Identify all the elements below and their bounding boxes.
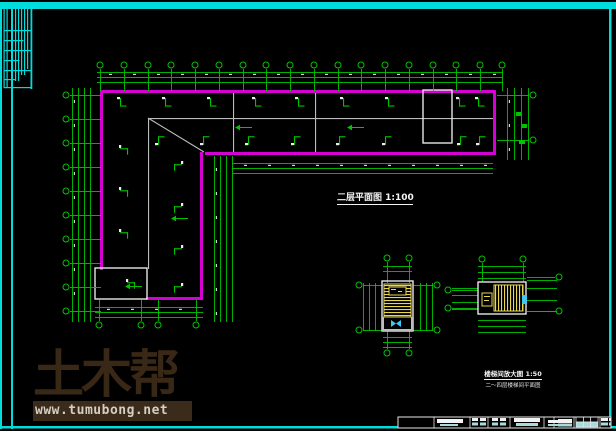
dimension-line [95, 317, 203, 318]
dimension-line [369, 283, 370, 331]
dimension-text-mark [292, 165, 295, 166]
grid-axis-bubble [520, 256, 526, 262]
dimension-text-mark [445, 74, 448, 75]
door-symbol [174, 286, 182, 287]
grid-axis-bubble [477, 62, 483, 68]
door-symbol [388, 106, 395, 107]
dimension-line [452, 302, 478, 303]
dimension-text-mark [509, 148, 510, 151]
dimension-line [72, 88, 73, 322]
dimension-line [478, 320, 526, 321]
dimension-line [478, 326, 526, 327]
grid-extension-line [219, 69, 220, 91]
dimension-text-mark [364, 165, 367, 166]
door-symbol [255, 106, 262, 107]
dimension-text-mark [74, 100, 75, 103]
grid-extension-line [433, 69, 434, 91]
grid-axis-bubble [384, 255, 390, 261]
grid-axis-bubble [63, 164, 69, 170]
grid-extension-line [452, 290, 478, 291]
drawing-sheet: 二层平面图 1:100 楼梯间放大图 1:50 二～四层楼梯间平面图 土木帮 w… [0, 0, 616, 431]
grid-axis-bubble [121, 62, 127, 68]
door-symbol [120, 148, 128, 149]
dimension-line [426, 283, 427, 331]
grid-extension-line [171, 69, 172, 91]
dimension-text-mark [349, 74, 352, 75]
grid-axis-bubble [63, 236, 69, 242]
door-symbol [120, 190, 128, 191]
door-jamb [200, 143, 203, 145]
grid-axis-bubble [406, 62, 412, 68]
grid-axis-bubble [453, 62, 459, 68]
dimension-line [214, 156, 215, 322]
grid-extension-line [70, 287, 101, 288]
grid-axis-bubble [96, 322, 102, 328]
dimension-line [452, 309, 478, 310]
door-jamb [119, 187, 121, 190]
title-block-grid-cell [576, 422, 583, 427]
section-marker [522, 295, 527, 304]
title-block-field [480, 423, 486, 426]
door-symbol [459, 106, 466, 107]
door-symbol [174, 286, 175, 293]
door-symbol [294, 136, 301, 137]
dimension-line [478, 272, 526, 273]
dimension-text-mark [74, 148, 75, 151]
title-block-text-bar [514, 418, 540, 422]
title-block-field [500, 423, 506, 426]
title-block-text-bar [548, 420, 558, 423]
grid-extension-line [363, 285, 383, 286]
wall-segment [146, 297, 203, 300]
dimension-text-mark [484, 165, 487, 166]
grid-axis-bubble [287, 62, 293, 68]
dimension-line [232, 163, 493, 164]
grid-extension-line [409, 262, 410, 283]
dimension-text-mark [244, 165, 247, 166]
door-symbol [460, 137, 461, 145]
title-block-text-bar [480, 418, 486, 421]
grid-extension-line [158, 300, 159, 321]
watermark-brand-text: 土木帮 [33, 348, 192, 402]
grid-axis-bubble [434, 327, 440, 333]
grid-axis-bubble [63, 212, 69, 218]
door-jamb [456, 97, 459, 99]
door-jamb [126, 279, 128, 282]
door-symbol [210, 106, 217, 107]
dimension-text-mark [157, 74, 160, 75]
stair-detail-title-line1: 楼梯间放大图 1:50 [484, 368, 541, 380]
door-jamb [457, 143, 460, 145]
grid-axis-bubble [430, 62, 436, 68]
dimension-line [514, 88, 515, 160]
door-jamb [252, 97, 255, 99]
dimension-text-mark [179, 309, 182, 310]
grid-axis-bubble [445, 287, 451, 293]
dimension-line [232, 173, 493, 174]
title-block-text-bar [609, 418, 611, 421]
dimension-text-mark [388, 165, 391, 166]
title-block-text-bar [500, 418, 506, 421]
door-symbol [298, 98, 299, 106]
dimension-text-mark [216, 168, 217, 171]
grid-axis-bubble [138, 322, 144, 328]
dimension-text-mark [74, 196, 75, 199]
grid-extension-line [409, 69, 410, 91]
grid-extension-line [482, 263, 483, 282]
door-symbol [165, 106, 172, 107]
grid-extension-line [413, 330, 433, 331]
door-symbol [298, 106, 305, 107]
stair-room-tag-text [398, 291, 402, 292]
grid-axis-bubble [406, 255, 412, 261]
grid-extension-line [99, 300, 100, 321]
title-block-text-bar [558, 419, 572, 423]
title-block-field [601, 423, 608, 426]
grid-axis-bubble [168, 62, 174, 68]
grid-extension-line [70, 143, 101, 144]
section-marker [396, 320, 401, 327]
dimension-text-mark [253, 74, 256, 75]
door-jamb [181, 161, 183, 164]
partition-line [315, 93, 316, 152]
dimension-text-mark [216, 240, 217, 243]
dimension-text-mark [216, 192, 217, 195]
dimension-line [232, 168, 493, 169]
dimension-text-mark [133, 74, 136, 75]
dimension-text-mark [412, 165, 415, 166]
stair-detail-title: 楼梯间放大图 1:50 二～四层楼梯间平面图 [480, 361, 546, 389]
main-plan-title: 二层平面图 1:100 [337, 190, 413, 205]
door-symbol [120, 106, 127, 107]
grid-extension-line [387, 262, 388, 283]
door-symbol [127, 232, 128, 239]
door-symbol [120, 232, 128, 233]
door-jamb [291, 143, 294, 145]
direction-arrow [130, 286, 142, 287]
direction-arrow [176, 218, 188, 219]
dimension-text-mark [216, 312, 217, 315]
dimension-text-mark [373, 74, 376, 75]
grid-extension-line [385, 69, 386, 91]
dimension-text-mark [469, 74, 472, 75]
door-jamb [340, 97, 343, 99]
door-symbol [174, 248, 175, 255]
dimension-line [452, 288, 478, 289]
grid-extension-line [456, 69, 457, 91]
grid-axis-bubble [434, 282, 440, 288]
grid-extension-line [527, 277, 555, 278]
door-jamb [117, 97, 120, 99]
grid-extension-line [70, 191, 101, 192]
dimension-text-mark [325, 74, 328, 75]
grid-extension-line [527, 311, 555, 312]
door-symbol [459, 98, 460, 106]
door-symbol [339, 136, 346, 137]
door-symbol [134, 282, 135, 289]
room-outline [95, 268, 147, 299]
watermark-url-text: www.tumubong.net [33, 403, 168, 418]
grid-extension-line [70, 239, 101, 240]
direction-arrow-head [125, 284, 130, 289]
dimension-text-mark [316, 165, 319, 166]
grid-axis-bubble [530, 92, 536, 98]
stair-room-tag-text [484, 296, 490, 297]
grid-extension-line [195, 69, 196, 91]
stair-landing-wall [382, 317, 384, 331]
dimension-text-mark [436, 165, 439, 166]
stair-landing-wall [382, 329, 413, 331]
margin-strip-line [4, 79, 16, 80]
door-symbol [174, 248, 182, 249]
grid-extension-line [523, 263, 524, 282]
title-block-field [440, 424, 458, 426]
grid-axis-bubble [145, 62, 151, 68]
wall-segment [100, 90, 103, 270]
grid-extension-line [314, 69, 315, 91]
door-jamb [475, 97, 478, 99]
door-jamb [181, 203, 183, 206]
door-jamb [336, 143, 339, 145]
margin-strip-line [4, 70, 31, 71]
stair-landing-wall [411, 317, 413, 331]
door-jamb [181, 245, 183, 248]
watermark-url-bar: www.tumubong.net [33, 401, 192, 421]
title-block-text-bar [437, 419, 463, 423]
grid-extension-line [100, 69, 101, 91]
grid-extension-line [480, 69, 481, 91]
title-block-text-bar [601, 418, 608, 421]
grid-extension-line [413, 285, 433, 286]
dimension-text-mark [216, 288, 217, 291]
grid-axis-bubble [479, 256, 485, 262]
direction-arrow [240, 127, 252, 128]
sheet-frame-line [0, 2, 616, 9]
margin-strip-line [21, 9, 22, 75]
dimension-line [375, 283, 376, 331]
dimension-line [521, 88, 522, 160]
grid-extension-line [70, 215, 101, 216]
grid-extension-line [70, 167, 101, 168]
grid-axis-bubble [530, 137, 536, 143]
grid-extension-line [124, 69, 125, 91]
grid-axis-bubble [335, 62, 341, 68]
title-block-grid-cell [583, 422, 590, 427]
dimension-line [452, 295, 478, 296]
grid-extension-line [452, 308, 478, 309]
dimension-line [78, 88, 79, 322]
dimension-text-mark [107, 309, 110, 310]
dimension-line [420, 283, 421, 331]
door-symbol [127, 190, 128, 197]
door-symbol [385, 137, 386, 145]
grid-extension-line [243, 69, 244, 91]
dimension-text-mark [397, 74, 400, 75]
margin-strip-line [7, 9, 8, 87]
door-symbol [478, 98, 479, 106]
dimension-line [97, 77, 503, 78]
door-symbol [248, 137, 249, 145]
wall-segment [493, 90, 496, 155]
grid-axis-bubble [406, 350, 412, 356]
grid-axis-bubble [556, 274, 562, 280]
door-symbol [479, 137, 480, 145]
grid-axis-bubble [445, 305, 451, 311]
margin-strip-line [4, 30, 31, 31]
direction-arrow-head [235, 125, 240, 130]
door-jamb [207, 97, 210, 99]
door-jamb [295, 97, 298, 99]
margin-strip-line [4, 9, 5, 87]
grid-extension-line [148, 69, 149, 91]
sheet-frame-line [609, 9, 612, 427]
grid-axis-bubble [356, 327, 362, 333]
title-block-text-bar [472, 418, 478, 421]
margin-strip-line [31, 9, 33, 89]
dimension-text-mark [509, 124, 510, 127]
dimension-line [527, 300, 557, 301]
title-block-field [492, 423, 498, 426]
door-symbol [174, 206, 182, 207]
dimension-line [432, 283, 433, 331]
door-symbol [174, 206, 175, 213]
grid-axis-bubble [63, 308, 69, 314]
title-block-field [548, 424, 558, 426]
stair-tread-hatch [494, 285, 523, 311]
door-symbol [460, 136, 467, 137]
dimension-text-mark [229, 74, 232, 75]
dimension-text-mark [216, 264, 217, 267]
grid-extension-line [70, 263, 101, 264]
grid-axis-bubble [63, 92, 69, 98]
dimension-text-mark [74, 172, 75, 175]
grid-axis-bubble [384, 350, 390, 356]
grid-extension-line [141, 300, 142, 321]
door-symbol [339, 137, 340, 145]
dimension-text-mark [421, 74, 424, 75]
wall-segment [200, 152, 203, 300]
dimension-text-mark [205, 74, 208, 75]
margin-strip-line [24, 9, 25, 75]
door-symbol [343, 98, 344, 106]
sheet-frame-line [0, 2, 2, 429]
grid-axis-bubble [382, 62, 388, 68]
partition-line [148, 118, 493, 119]
dimension-line [478, 266, 526, 267]
grid-axis-bubble [193, 322, 199, 328]
title-block-text-bar [492, 418, 498, 421]
grid-extension-line [290, 69, 291, 91]
title-block-field [472, 423, 478, 426]
grid-extension-line [70, 95, 101, 96]
dimension-text-mark [277, 74, 280, 75]
title-block-grid-cell [591, 422, 598, 427]
dimension-line [507, 88, 508, 160]
door-symbol [158, 137, 159, 145]
dimension-text-mark [340, 165, 343, 166]
grid-axis-bubble [63, 140, 69, 146]
door-symbol [479, 136, 486, 137]
grid-extension-line [196, 300, 197, 321]
grid-axis-bubble [63, 260, 69, 266]
door-symbol [343, 106, 350, 107]
grid-extension-line [338, 69, 339, 91]
dimension-line [97, 82, 503, 83]
room-outline [423, 90, 452, 143]
dimension-line [90, 88, 91, 322]
grid-extension-line [70, 311, 101, 312]
door-symbol [165, 98, 166, 106]
door-symbol [248, 136, 255, 137]
door-symbol [385, 136, 392, 137]
dimension-line [363, 283, 364, 331]
dimension-text-mark [74, 124, 75, 127]
dimension-text-mark [268, 165, 271, 166]
grid-axis-bubble [216, 62, 222, 68]
grid-axis-bubble [240, 62, 246, 68]
dimension-text-mark [74, 220, 75, 223]
door-symbol [255, 98, 256, 106]
partition-line [233, 93, 234, 152]
grid-extension-line [502, 69, 503, 91]
dimension-text-mark [74, 268, 75, 271]
partition-diagonal [148, 118, 204, 152]
grid-extension-line [361, 69, 362, 91]
grid-extension-line [266, 69, 267, 91]
dimension-text-mark [181, 74, 184, 75]
dimension-line [84, 88, 85, 322]
door-symbol [127, 148, 128, 155]
grid-extension-line [363, 330, 383, 331]
grid-axis-bubble [63, 116, 69, 122]
door-symbol [294, 137, 295, 145]
grid-axis-bubble [155, 322, 161, 328]
dim-text-block [522, 124, 527, 128]
dimension-line [527, 288, 557, 289]
direction-arrow-head [171, 216, 176, 221]
grid-extension-line [409, 331, 410, 349]
dimension-text-mark [301, 74, 304, 75]
dimension-line [232, 156, 233, 322]
partition-line [148, 119, 149, 269]
section-marker [391, 320, 396, 327]
dimension-line [478, 332, 526, 333]
dimension-text-mark [216, 216, 217, 219]
dimension-line [478, 278, 526, 279]
watermark: 土木帮 www.tumubong.net [33, 348, 192, 421]
title-block-field [609, 423, 611, 426]
dimension-text-mark [509, 100, 510, 103]
dimension-line [220, 156, 221, 322]
margin-strip-line [27, 9, 28, 69]
grid-axis-bubble [356, 282, 362, 288]
grid-axis-bubble [97, 62, 103, 68]
stair-room-tag [389, 287, 406, 295]
door-jamb [476, 143, 479, 145]
door-jamb [162, 97, 165, 99]
dimension-text-mark [74, 292, 75, 295]
grid-axis-bubble [499, 62, 505, 68]
dim-text-block [516, 112, 521, 116]
door-symbol [174, 164, 182, 165]
dimension-line [97, 72, 503, 73]
sheet-frame-line [11, 9, 13, 429]
door-symbol [388, 98, 389, 106]
door-symbol [203, 136, 210, 137]
grid-axis-bubble [358, 62, 364, 68]
door-jamb [385, 97, 388, 99]
dimension-text-mark [493, 74, 496, 75]
